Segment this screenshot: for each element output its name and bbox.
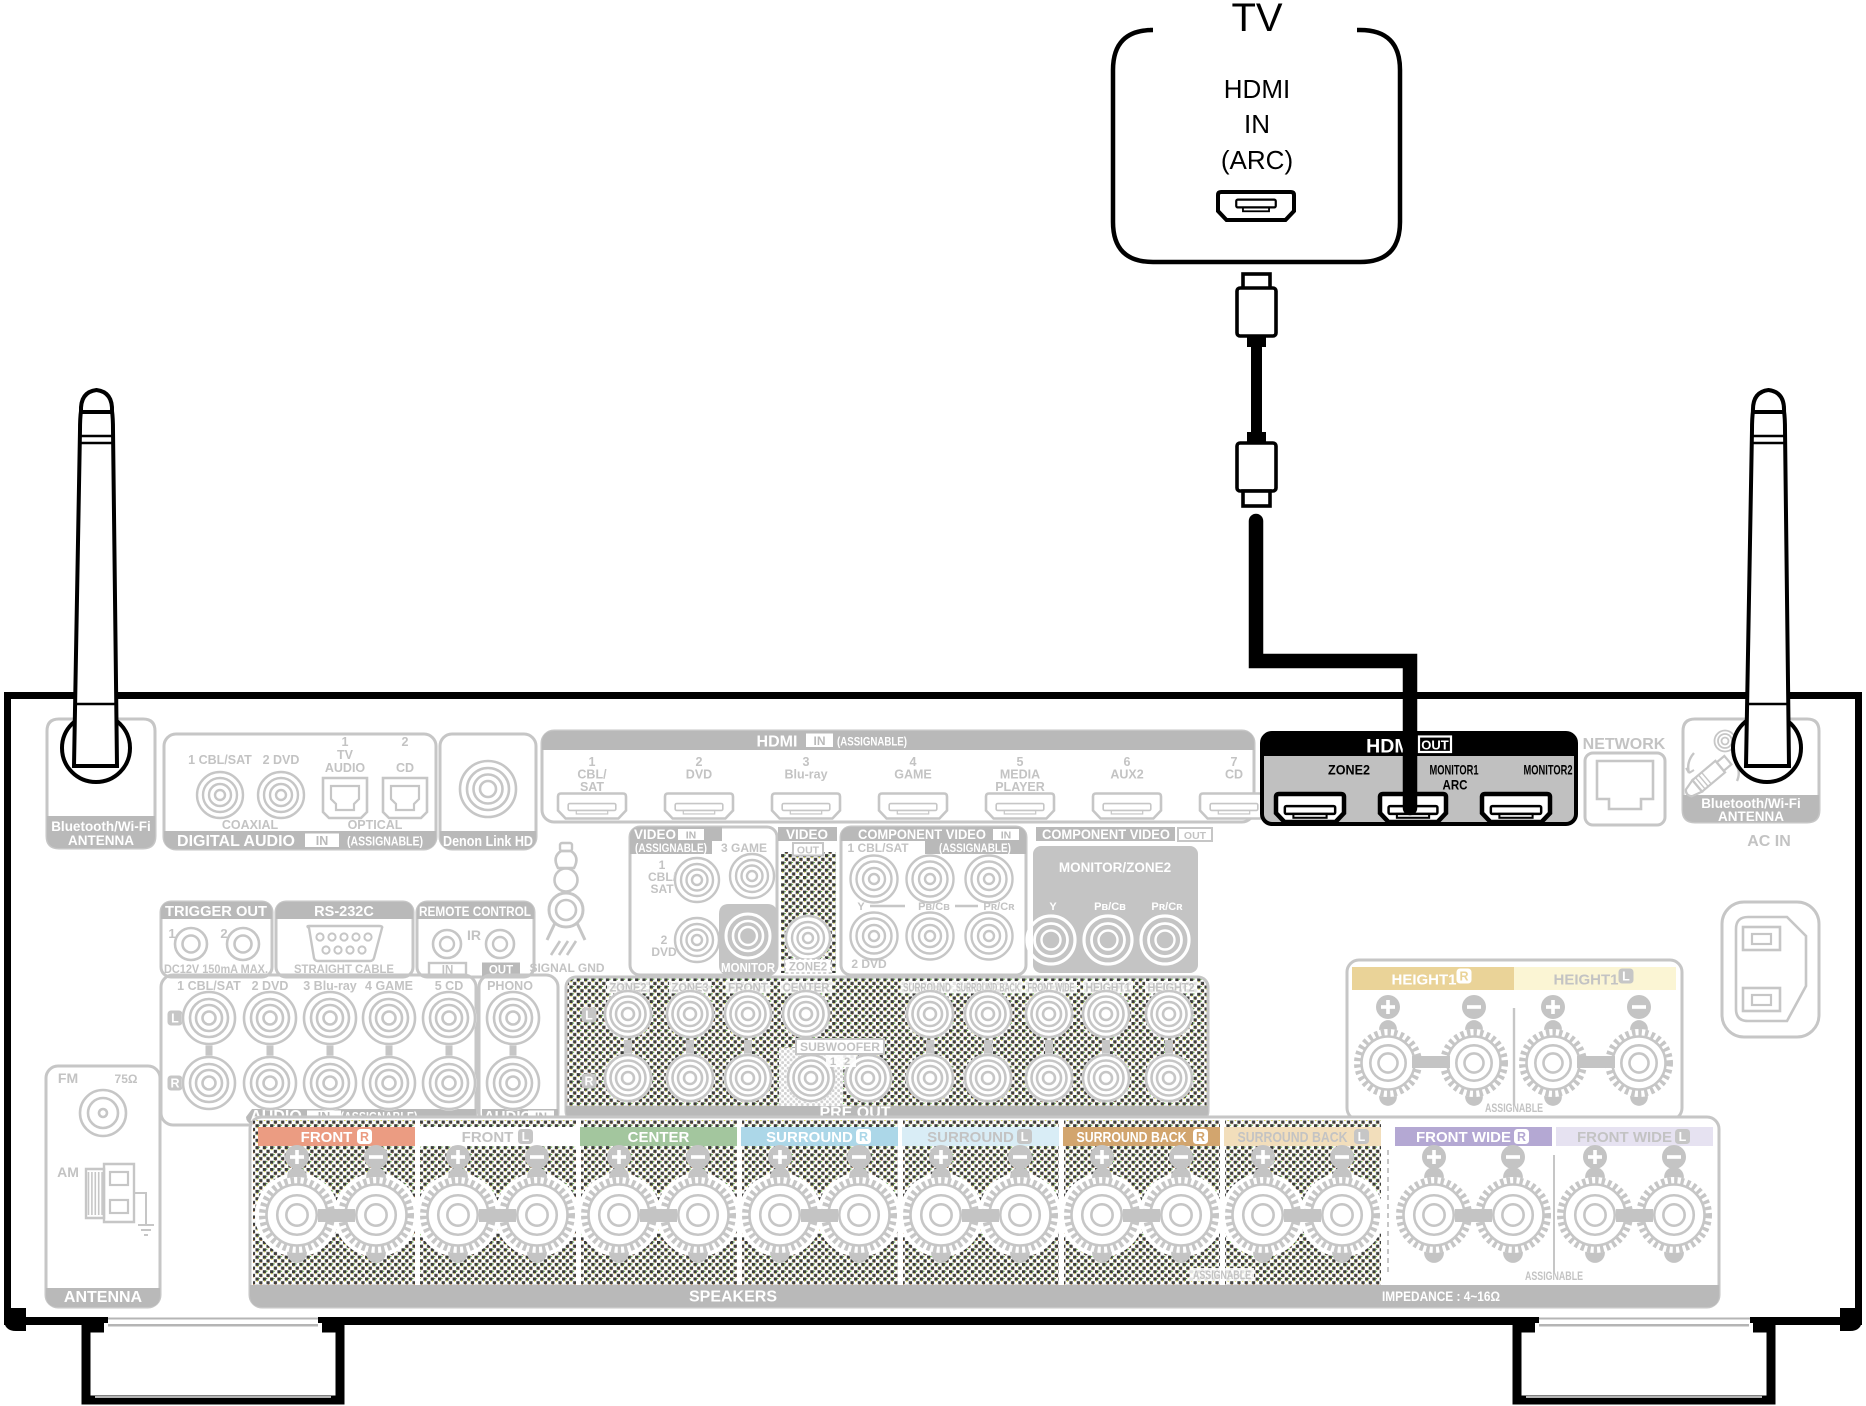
svg-text:AUX2: AUX2 [1110,768,1143,782]
svg-text:AC IN: AC IN [1747,833,1791,850]
svg-text:Y: Y [1049,901,1057,913]
svg-text:IN: IN [316,834,329,848]
svg-text:L: L [522,1130,530,1144]
svg-text:FRONT WIDE: FRONT WIDE [1577,1129,1672,1146]
svg-text:FRONT: FRONT [462,1129,514,1146]
svg-text:L: L [1358,1130,1366,1144]
svg-text:R: R [584,1075,593,1089]
svg-text:SURROUND BACK: SURROUND BACK [1238,1129,1348,1146]
svg-text:R: R [1459,970,1468,984]
svg-text:Y: Y [857,901,865,913]
svg-text:ASSIGNABLE: ASSIGNABLE [1485,1103,1543,1115]
svg-text:1 CBL/SAT: 1 CBL/SAT [188,753,252,767]
svg-text:HDMI: HDMI [757,734,798,751]
svg-text:PLAYER: PLAYER [995,780,1045,794]
svg-text:OPTICAL: OPTICAL [348,818,403,832]
svg-text:REMOTE CONTROL: REMOTE CONTROL [419,904,531,919]
svg-text:MONITOR: MONITOR [721,961,775,975]
svg-text:SIGNAL GND: SIGNAL GND [529,961,604,975]
svg-text:SAT: SAT [580,780,604,794]
svg-text:OUT: OUT [797,845,820,857]
svg-text:RS-232C: RS-232C [314,904,374,920]
svg-text:R: R [859,1130,868,1144]
svg-text:CD: CD [1225,768,1243,782]
svg-text:2 DVD: 2 DVD [851,957,887,971]
svg-text:CENTER: CENTER [628,1129,690,1146]
svg-text:TV: TV [1231,0,1282,40]
svg-text:IMPEDANCE : 4~16Ω: IMPEDANCE : 4~16Ω [1382,1288,1500,1304]
svg-text:ZONE2: ZONE2 [789,962,827,974]
svg-text:R: R [360,1130,369,1144]
svg-text:SAT: SAT [650,882,674,896]
svg-text:Denon Link HD: Denon Link HD [443,833,533,850]
svg-text:HEIGHT1: HEIGHT1 [1553,972,1618,989]
svg-text:2 DVD: 2 DVD [263,753,300,767]
svg-text:3 GAME: 3 GAME [721,841,767,855]
svg-text:NETWORK: NETWORK [1583,736,1666,753]
svg-text:TV: TV [337,748,354,762]
svg-text:ARC: ARC [1443,777,1468,793]
svg-text:(ASSIGNABLE): (ASSIGNABLE) [837,735,907,749]
svg-text:R: R [1196,1130,1205,1144]
svg-text:L: L [585,1009,593,1023]
svg-text:OUT: OUT [1184,830,1207,842]
svg-text:CD: CD [396,761,414,775]
svg-text:SURROUND BACK: SURROUND BACK [1077,1129,1187,1146]
svg-text:HEIGHT1: HEIGHT1 [1391,972,1456,989]
svg-text:ZONE2: ZONE2 [1328,762,1370,778]
svg-text:SPEAKERS: SPEAKERS [689,1289,777,1306]
svg-text:ASSIGNABLE: ASSIGNABLE [1525,1271,1583,1283]
svg-text:(ASSIGNABLE): (ASSIGNABLE) [939,843,1011,855]
svg-text:R: R [170,1077,179,1091]
svg-text:COMPONENT VIDEO: COMPONENT VIDEO [1042,827,1170,842]
svg-text:IR: IR [467,927,481,943]
svg-text:HDMI: HDMI [1224,74,1290,104]
svg-text:AUDIO: AUDIO [325,761,366,775]
svg-text:ANTENNA: ANTENNA [68,833,134,848]
svg-text:ANTENNA: ANTENNA [1718,809,1784,824]
svg-text:MONITOR/ZONE2: MONITOR/ZONE2 [1059,860,1171,875]
svg-text:OUT: OUT [1421,738,1449,753]
svg-text:MONITOR2: MONITOR2 [1524,762,1573,778]
svg-text:L: L [171,1012,179,1026]
svg-text:SURROUND: SURROUND [766,1129,853,1146]
svg-text:ANTENNA: ANTENNA [64,1289,143,1306]
svg-text:AM: AM [57,1164,79,1180]
svg-text:IN: IN [814,734,826,748]
svg-text:DIGITAL AUDIO: DIGITAL AUDIO [177,833,295,850]
svg-text:ASSIGNABLE: ASSIGNABLE [1193,1270,1251,1282]
svg-text:Bluetooth/Wi-Fi: Bluetooth/Wi-Fi [51,819,151,834]
svg-text:IN: IN [1001,830,1012,842]
svg-text:VIDEO: VIDEO [634,827,676,842]
svg-text:FRONT WIDE: FRONT WIDE [1416,1129,1511,1146]
svg-text:MONITOR1: MONITOR1 [1430,762,1479,778]
svg-text:(ASSIGNABLE): (ASSIGNABLE) [635,843,707,855]
svg-text:Pʙ/Cʙ: Pʙ/Cʙ [918,901,950,913]
svg-text:1 CBL/SAT: 1 CBL/SAT [847,841,909,855]
svg-text:1: 1 [342,735,349,749]
svg-text:DVD: DVD [651,945,677,959]
svg-text:2: 2 [844,1056,850,1068]
svg-text:SURROUND: SURROUND [927,1129,1014,1146]
svg-text:IN: IN [1244,109,1270,139]
svg-text:Pʀ/Cʀ: Pʀ/Cʀ [1151,901,1183,913]
svg-text:Blu-ray: Blu-ray [784,768,827,782]
svg-text:L: L [1679,1130,1687,1144]
svg-text:SUBWOOFER: SUBWOOFER [800,1042,881,1054]
svg-text:1: 1 [830,1056,836,1068]
svg-text:75Ω: 75Ω [115,1072,138,1086]
svg-text:(ASSIGNABLE): (ASSIGNABLE) [347,835,423,849]
svg-text:FM: FM [58,1070,78,1086]
svg-text:2: 2 [402,735,409,749]
svg-text:COAXIAL: COAXIAL [222,818,279,832]
svg-text:TRIGGER OUT: TRIGGER OUT [165,904,267,920]
svg-text:Pʙ/Cʙ: Pʙ/Cʙ [1094,901,1126,913]
svg-text:(ARC): (ARC) [1221,145,1293,175]
svg-text:IN: IN [686,830,697,842]
svg-text:COMPONENT VIDEO: COMPONENT VIDEO [858,827,986,842]
svg-text:L: L [1622,970,1630,984]
svg-text:DVD: DVD [686,768,712,782]
svg-text:L: L [1021,1130,1029,1144]
svg-text:FRONT: FRONT [301,1129,353,1146]
svg-text:GAME: GAME [894,768,932,782]
svg-text:R: R [1517,1130,1526,1144]
svg-text:VIDEO: VIDEO [786,827,828,842]
